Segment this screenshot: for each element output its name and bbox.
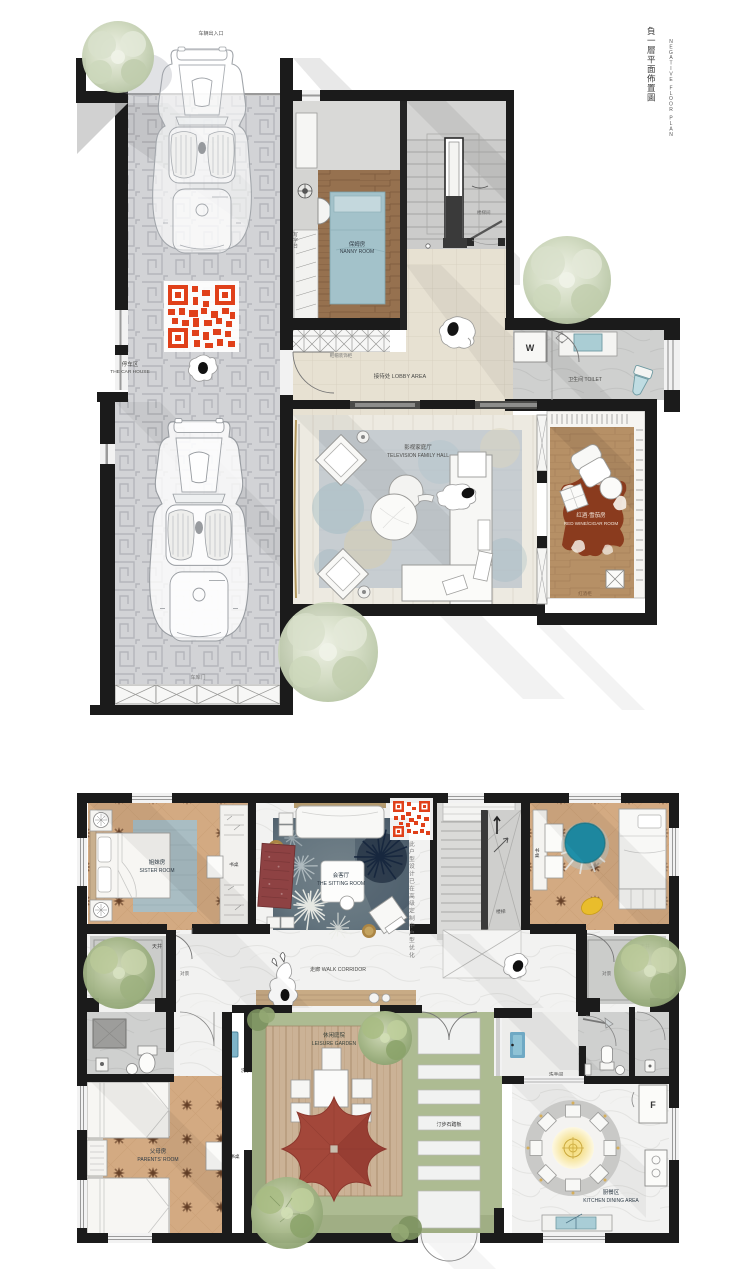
svg-text:此户型设计已在高级定制中户型优化: 此户型设计已在高级定制中户型优化: [409, 840, 415, 959]
svg-text:TELEVISION FAMILY HALL: TELEVISION FAMILY HALL: [387, 453, 449, 459]
svg-text:RED WINE/CIGAR ROOM: RED WINE/CIGAR ROOM: [564, 521, 619, 526]
svg-text:走廊 WALK CORRIDOR: 走廊 WALK CORRIDOR: [310, 965, 366, 973]
svg-text:THE SITTING ROOM: THE SITTING ROOM: [317, 881, 365, 887]
svg-text:书桌: 书桌: [229, 861, 239, 868]
svg-text:红酒柜: 红酒柜: [578, 590, 592, 597]
svg-text:KITCHEN DINING AREA: KITCHEN DINING AREA: [583, 1198, 639, 1204]
svg-text:卫生间 TOILET: 卫生间 TOILET: [568, 376, 602, 383]
svg-text:厨餐区: 厨餐区: [603, 1188, 620, 1196]
svg-text:书桌: 书桌: [534, 847, 539, 859]
svg-text:負一層平面佈置圖: 負一層平面佈置圖: [647, 26, 656, 103]
svg-text:NANNY ROOM: NANNY ROOM: [340, 249, 374, 255]
svg-text:THE CAR HOUSE: THE CAR HOUSE: [110, 369, 149, 375]
svg-text:楼梯: 楼梯: [496, 908, 506, 915]
svg-text:休闲庭院: 休闲庭院: [323, 1031, 346, 1039]
svg-text:鞋帽装饰柜: 鞋帽装饰柜: [330, 352, 353, 359]
svg-text:对景: 对景: [180, 970, 190, 977]
svg-text:车库门: 车库门: [190, 674, 205, 681]
svg-text:LEISURE GARDEN: LEISURE GARDEN: [312, 1041, 357, 1047]
svg-text:楼梯间: 楼梯间: [477, 209, 491, 216]
svg-text:F: F: [650, 1100, 656, 1110]
svg-text:保姆房: 保姆房: [349, 240, 366, 248]
svg-text:天井: 天井: [152, 943, 162, 950]
svg-text:影视家庭厅: 影视家庭厅: [404, 443, 432, 451]
svg-text:会客厅: 会客厅: [333, 871, 350, 879]
svg-text:写字台: 写字台: [292, 232, 298, 249]
svg-text:停车区: 停车区: [122, 360, 139, 368]
svg-text:对景: 对景: [602, 970, 612, 977]
svg-text:汀步石踏板: 汀步石踏板: [436, 1121, 461, 1128]
svg-text:接待处 LOBBY AREA: 接待处 LOBBY AREA: [374, 372, 427, 380]
svg-text:车辆出入口: 车辆出入口: [198, 30, 223, 37]
svg-text:W: W: [526, 343, 535, 353]
svg-text:红酒·雪茄房: 红酒·雪茄房: [576, 511, 606, 519]
